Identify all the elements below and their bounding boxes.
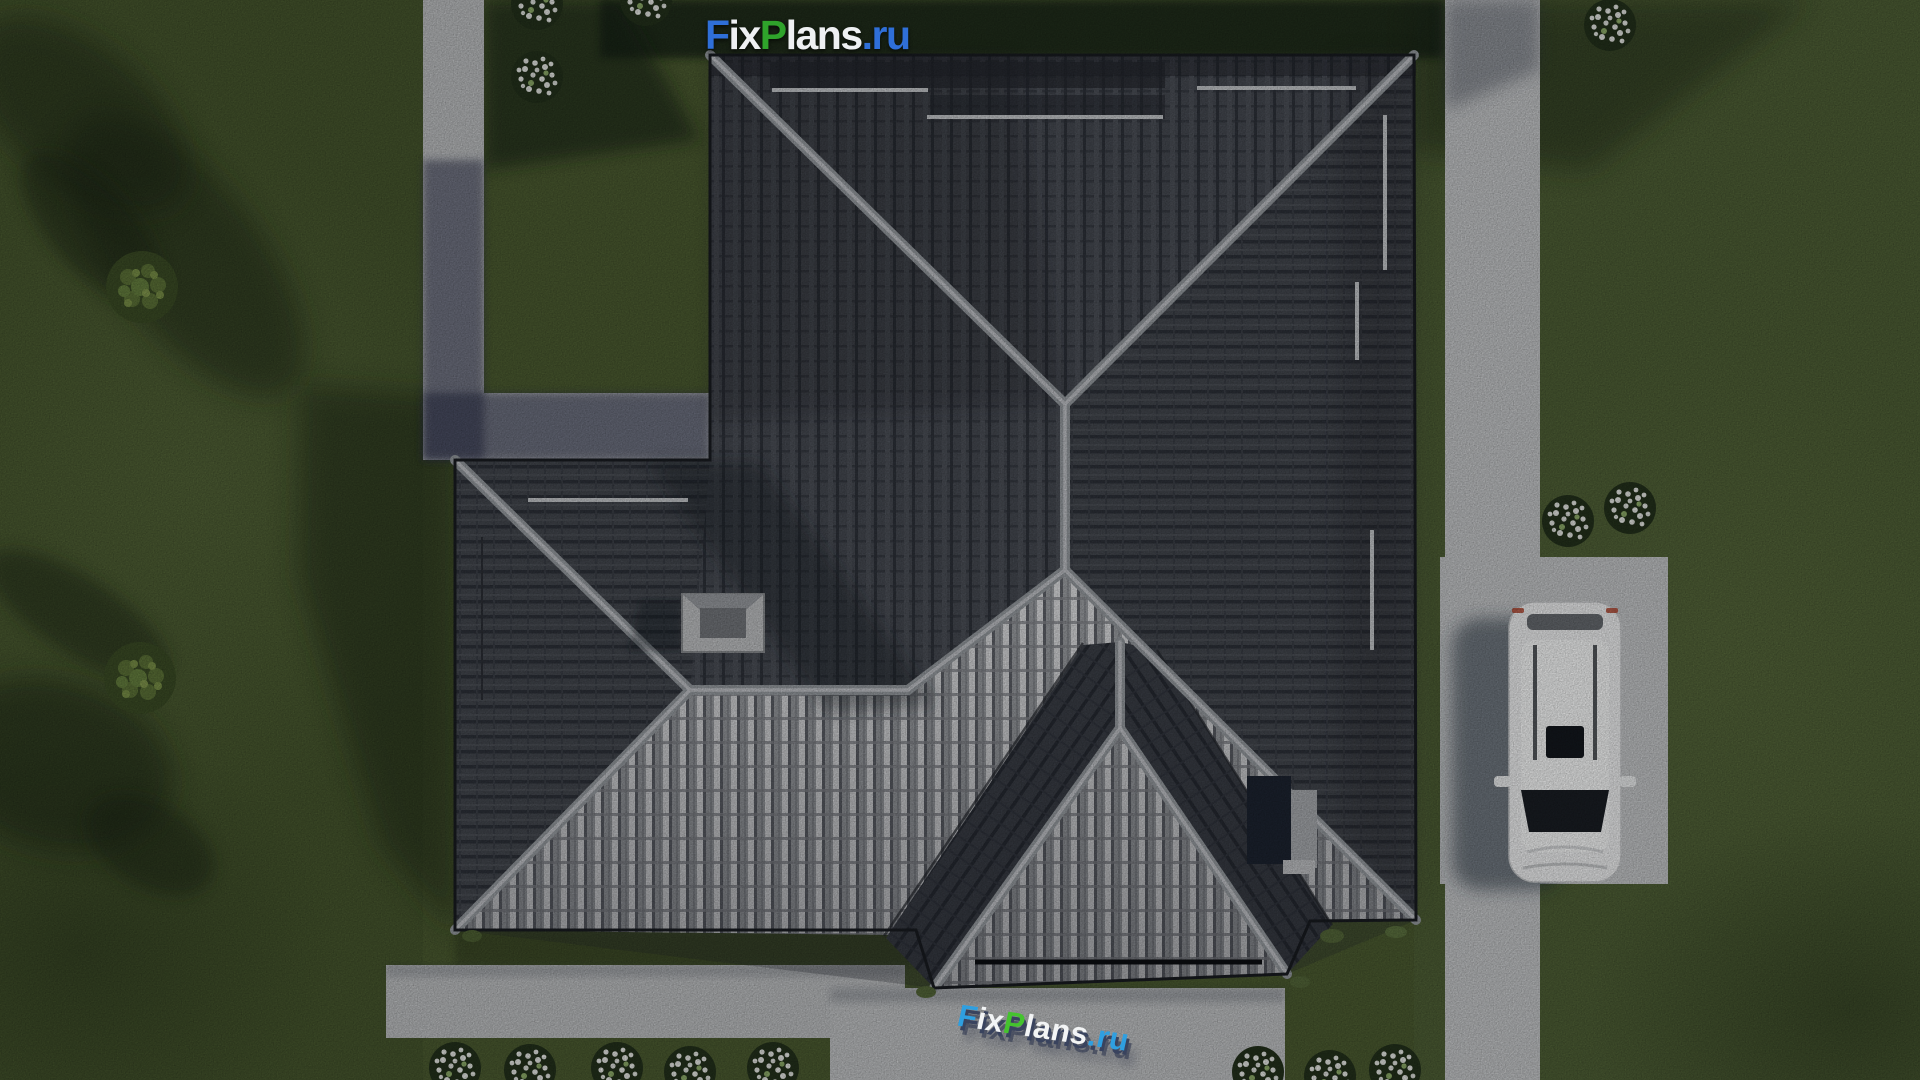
logo-letter: P bbox=[760, 12, 786, 58]
logo-letter: .ru bbox=[1084, 1017, 1132, 1057]
logo-letter: ix bbox=[729, 12, 760, 58]
logo-letter: lans bbox=[786, 12, 862, 58]
watermark-top-logo: FixPlans.ru bbox=[705, 12, 910, 59]
grain-overlay bbox=[0, 0, 1920, 1080]
aerial-render: FixPlans.ru FixPlans.ru bbox=[0, 0, 1920, 1080]
logo-letter: F bbox=[705, 12, 729, 58]
logo-letter: .ru bbox=[862, 12, 910, 58]
scene-canvas bbox=[0, 0, 1920, 1080]
